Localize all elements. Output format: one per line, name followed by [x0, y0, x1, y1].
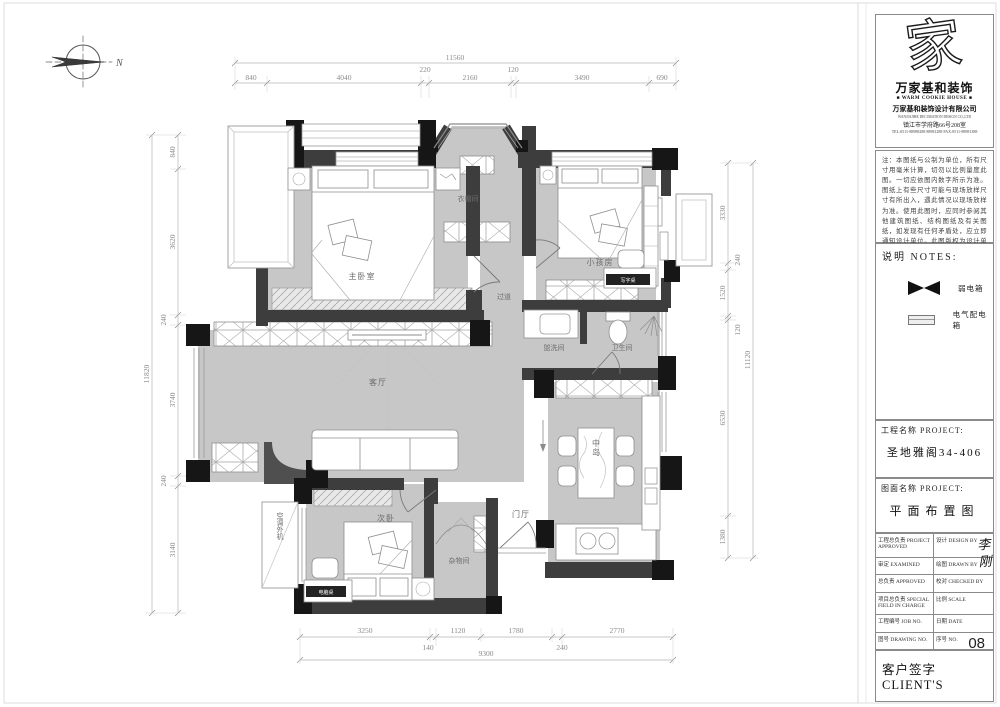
sofa: [312, 430, 458, 470]
kids-nightstand-left: [540, 166, 556, 184]
label-washroom: 盥洗间: [544, 343, 565, 352]
approval-cell: 审定 EXAMINED: [876, 558, 934, 574]
svg-text:120: 120: [733, 324, 742, 336]
designer-signature: 李刚: [977, 537, 992, 572]
svg-text:3330: 3330: [718, 205, 727, 220]
master-nightstand-right: [436, 168, 460, 190]
notes-block: 注：本图纸与公制为单位，所有尺寸用毫米计算，切勿以比例量度此图。一切应依图内数字…: [875, 150, 994, 243]
dim-right-overall: 11120: [743, 351, 752, 369]
svg-text:240: 240: [159, 314, 168, 326]
approval-cell: 序号 NO.: [936, 637, 958, 643]
kitchen-side-counter: [642, 396, 660, 530]
chair-3: [616, 436, 634, 456]
svg-text:140: 140: [422, 643, 434, 652]
client-signature-block: 客户签字 CLIENT'S: [875, 650, 994, 702]
drawing-name-block: 图面名称 PROJECT: 平面布置图: [875, 478, 994, 533]
project-name-block: 工程名称 PROJECT: 圣地雅阁34-406: [875, 420, 994, 478]
label-toilet: 卫生间: [612, 343, 633, 352]
svg-text:240: 240: [556, 643, 568, 652]
svg-text:3490: 3490: [575, 73, 590, 82]
notes-text: 注：本图纸与公制为单位，所有尺寸用毫米计算，切勿以比例量度此图。一切应依图内数字…: [882, 156, 987, 257]
svg-text:1120: 1120: [451, 626, 466, 635]
legend-label: 弱电箱: [958, 283, 984, 294]
brand-logo-icon: 家: [876, 15, 993, 77]
svg-text:240: 240: [159, 475, 168, 487]
svg-text:2770: 2770: [610, 626, 625, 635]
kitchen-upper-cabinet: [556, 378, 652, 398]
approval-cell: 工程总负责 PROJECT APPROVED: [876, 534, 934, 557]
svg-text:1520: 1520: [718, 285, 727, 300]
bedroom2-window: [298, 508, 306, 582]
entry-door: [500, 522, 536, 548]
distribution-box-icon: [908, 315, 935, 325]
drawing-sheet: N: [0, 0, 1000, 707]
svg-text:3620: 3620: [168, 234, 177, 249]
svg-text:3140: 3140: [168, 542, 177, 557]
company-address: 镇江市学府路66号208室: [876, 120, 993, 129]
brand-tagline: ■ WARM COOKIE HOUSE ■: [876, 96, 993, 101]
svg-text:2160: 2160: [463, 73, 478, 82]
approval-cell: 总负责 APPROVED: [876, 575, 934, 592]
storage-shelf: [474, 516, 488, 552]
dim-top-overall: 11560: [446, 53, 465, 62]
label-kids: 小孩房: [587, 257, 614, 267]
svg-text:1780: 1780: [509, 626, 524, 635]
company-logo-block: 家 万家基和装饰 ■ WARM COOKIE HOUSE ■ 万家基和装饰设计有…: [875, 14, 994, 148]
north-compass: N: [46, 36, 124, 88]
living-side-cabinet: [212, 443, 258, 472]
dim-bottom-overall: 9300: [479, 649, 494, 658]
kids-desk-label: 写字桌: [620, 277, 635, 284]
computer-desk-label: 电脑桌: [318, 589, 333, 596]
project-value: 圣地雅阁34-406: [876, 444, 993, 460]
tv: [348, 330, 426, 340]
company-name-en: WANJIAJIHE DECORATION DESIGN CO.,LTD: [882, 114, 987, 119]
drawing-label: 图面名称 PROJECT:: [876, 479, 993, 498]
label-living: 客厅: [369, 377, 387, 387]
cooktop: [576, 528, 618, 554]
legend-item-distribution-box: 电气配电箱: [908, 309, 993, 331]
corner-table: [412, 578, 434, 600]
svg-text:家: 家: [902, 15, 966, 77]
approval-cell: 日期 DATE: [934, 615, 993, 632]
chair-2: [558, 466, 576, 486]
sliding-door-leaf2: [660, 232, 668, 260]
master-bay-window: [302, 124, 420, 146]
label-bedroom2: 次卧: [377, 513, 395, 523]
dim-left: [146, 132, 186, 616]
label-corridor: 过道: [497, 292, 511, 301]
approval-cell: 校对 CHECKED BY: [934, 575, 993, 592]
svg-text:6530: 6530: [718, 410, 727, 425]
bed2: [344, 522, 412, 600]
approval-cell: 工程编号 JOB NO.: [876, 615, 934, 632]
legend-item-weak-current: 弱电箱: [908, 281, 993, 295]
label-entry: 门厅: [512, 509, 530, 519]
svg-text:690: 690: [656, 73, 668, 82]
compass-north-label: N: [115, 58, 124, 69]
svg-text:4040: 4040: [337, 73, 352, 82]
label-island: 中岛: [592, 438, 601, 457]
approval-cell: 项目总负责 SPECIAL FIELD IN CHARGE: [876, 593, 934, 614]
chair-4: [616, 466, 634, 486]
kids-desk-chair: [618, 250, 644, 268]
floor-plan-canvas: N: [0, 0, 1000, 707]
kids-bed: [558, 166, 642, 258]
svg-text:1380: 1380: [718, 529, 727, 544]
approval-cell: 比例 SCALE: [934, 593, 993, 614]
dim-top: [232, 57, 679, 98]
client-signature-label: 客户签字 CLIENT'S: [876, 651, 993, 701]
weak-current-box-icon: [908, 281, 940, 295]
company-tel: TEL:0511-88988288 88981288 FAX:0511-8898…: [876, 129, 993, 134]
ac-unit-label: 空调外机: [276, 511, 284, 541]
label-master: 主卧室: [349, 271, 376, 281]
company-name: 万家基和装饰设计有限公司: [876, 104, 993, 114]
master-nightstand-left: [288, 168, 310, 190]
approval-table: 工程总负责 PROJECT APPROVED设计 DESIGN BY 审定 EX…: [875, 533, 994, 650]
desk-chair: [312, 558, 338, 578]
svg-text:240: 240: [733, 254, 742, 266]
legend-label: 电气配电箱: [953, 309, 993, 331]
svg-text:840: 840: [245, 73, 257, 82]
svg-text:3740: 3740: [168, 392, 177, 407]
brand-name: 万家基和装饰: [876, 82, 993, 95]
notes-heading: 说明 NOTES:: [876, 244, 993, 267]
project-label: 工程名称 PROJECT:: [876, 421, 993, 440]
svg-text:840: 840: [168, 146, 177, 158]
entry-sill: [498, 548, 546, 553]
label-storage: 杂物间: [449, 556, 470, 565]
svg-text:120: 120: [507, 65, 519, 74]
chair-1: [558, 436, 576, 456]
label-cloakroom: 衣帽间: [458, 194, 479, 203]
svg-text:220: 220: [419, 65, 431, 74]
dim-left-overall: 11820: [142, 365, 151, 384]
legend-block: 说明 NOTES: 弱电箱 电气配电箱: [875, 243, 994, 420]
drawing-value: 平面布置图: [876, 502, 993, 519]
svg-text:3250: 3250: [358, 626, 373, 635]
